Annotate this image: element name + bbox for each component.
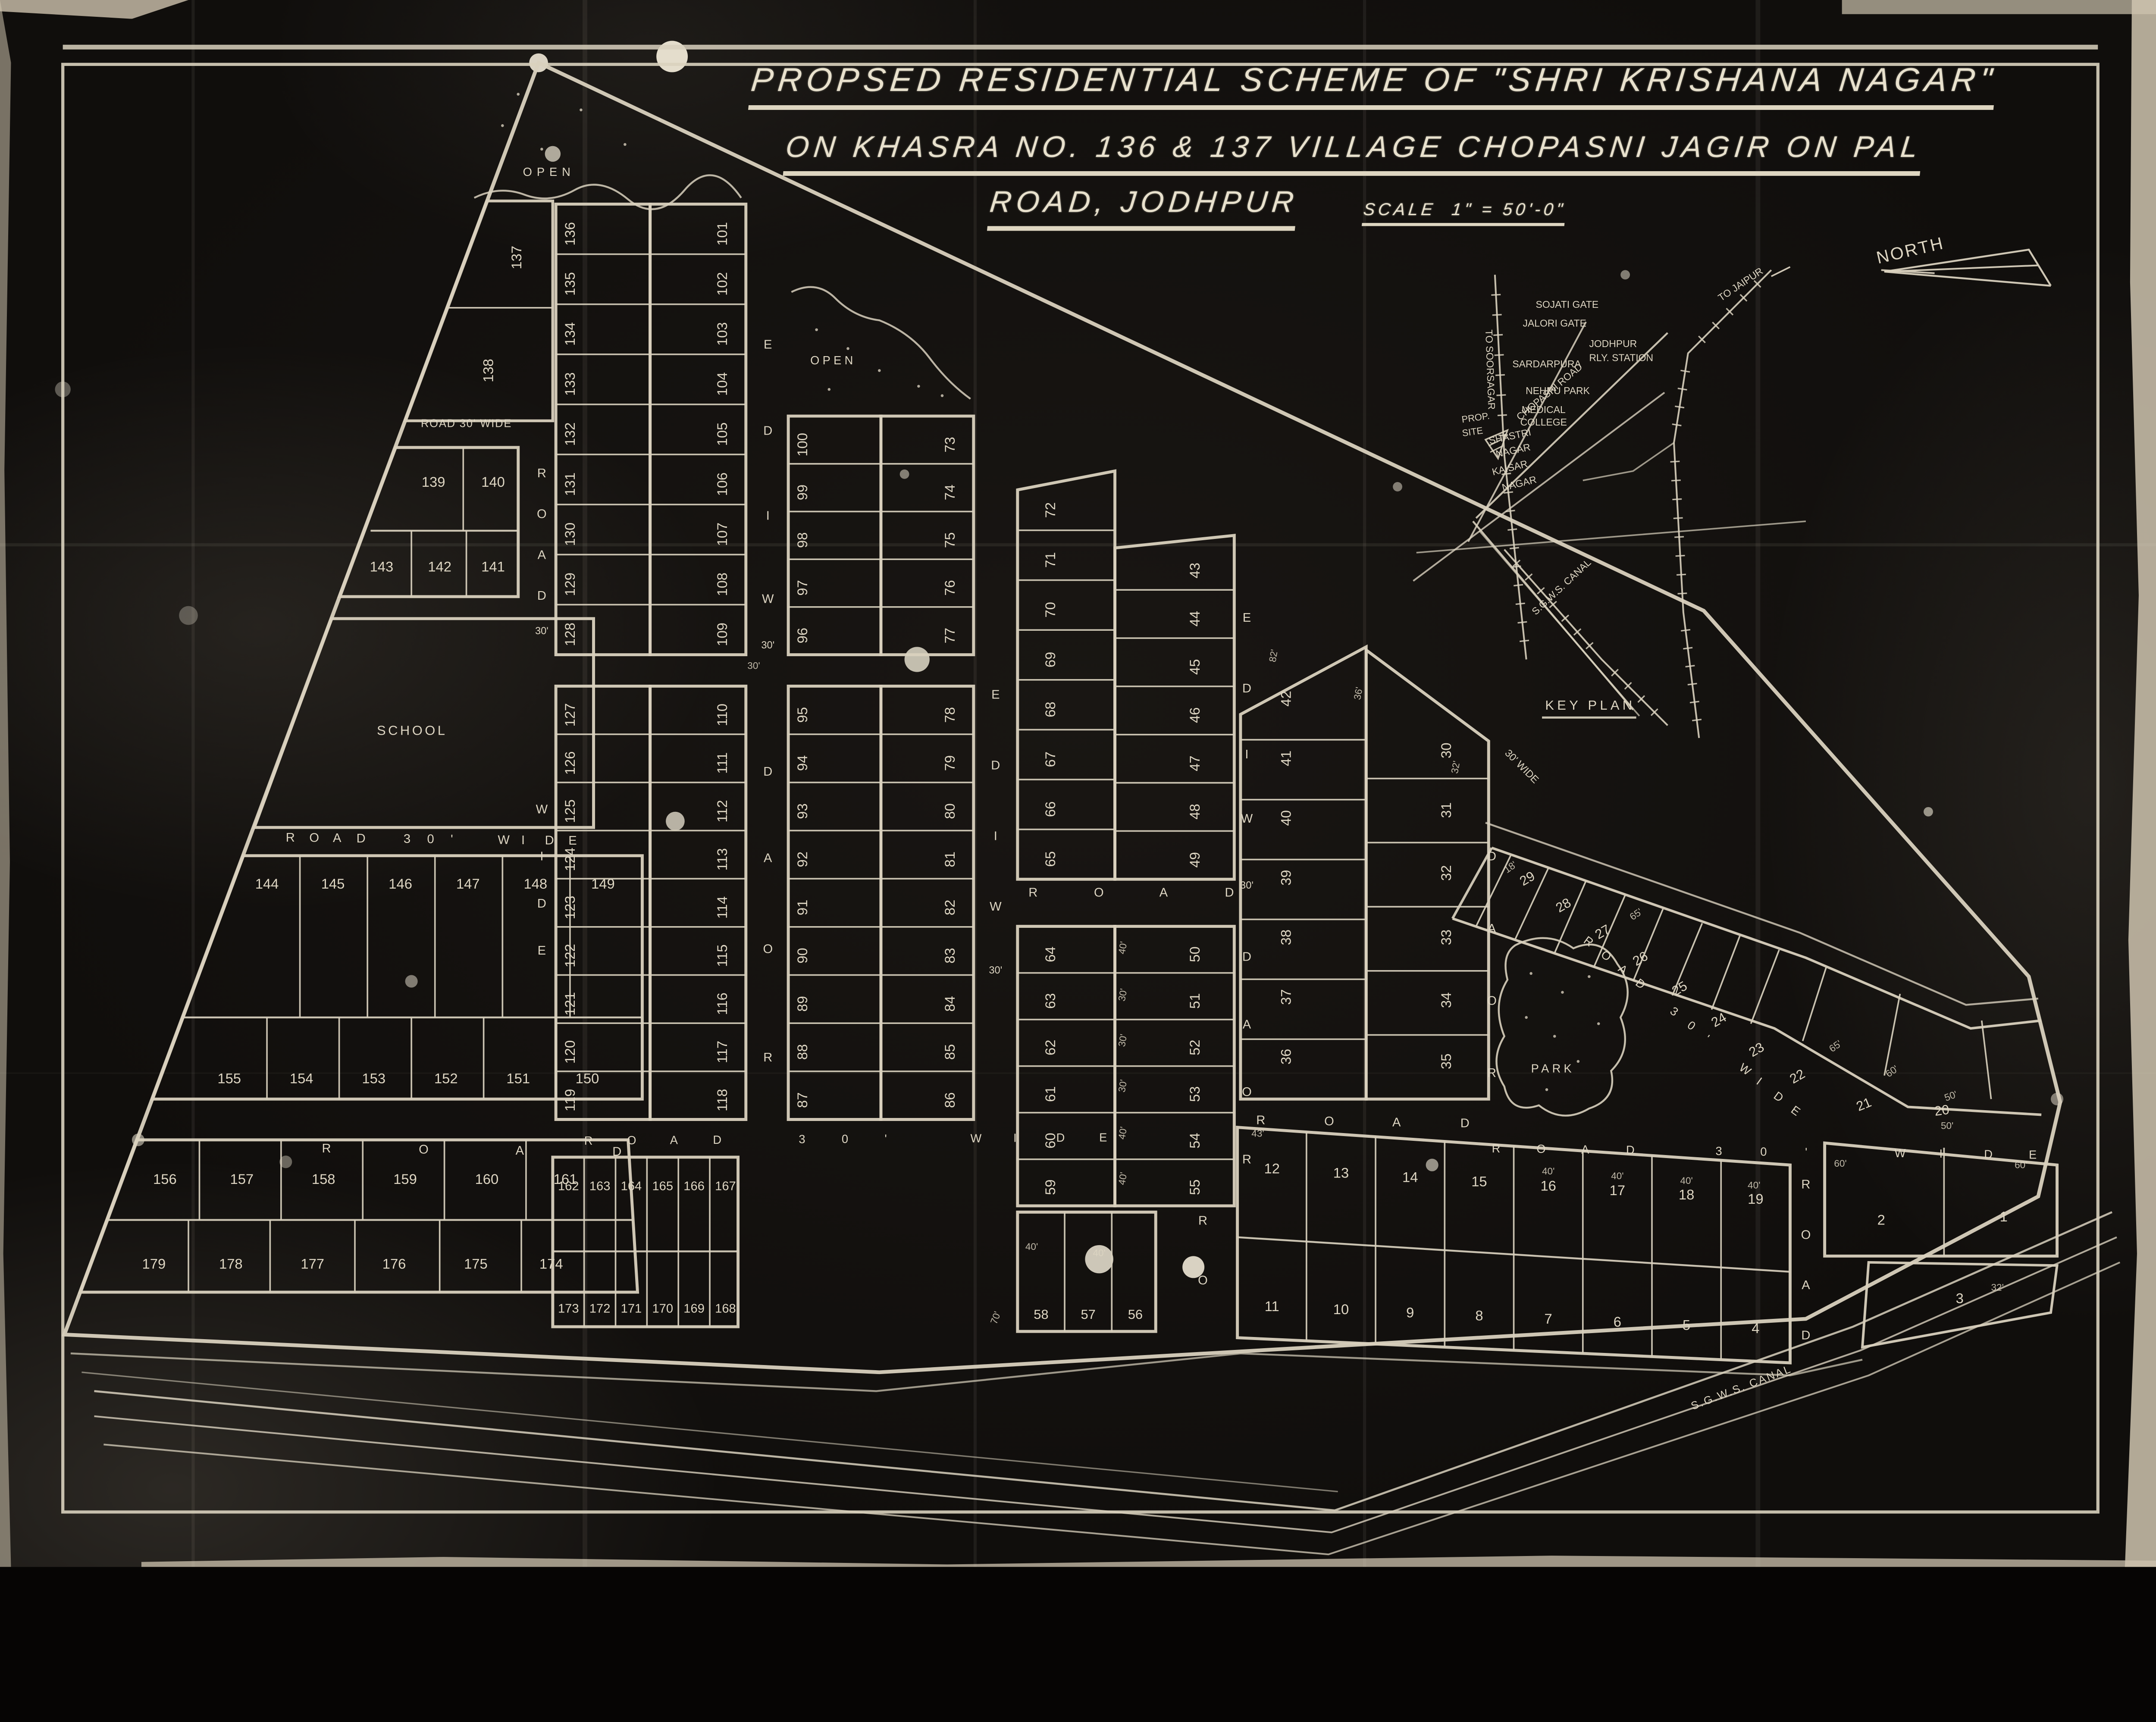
plot-138: 138: [480, 359, 496, 382]
boundary-line: [1018, 471, 1115, 879]
scan-stain: [179, 606, 198, 625]
vroad-label: EDIW: [762, 338, 774, 606]
plot-line: [1982, 1021, 1991, 1099]
road-letter: I: [994, 829, 997, 843]
plot-99: 99: [794, 485, 810, 500]
plot-4: 4: [1752, 1320, 1759, 1336]
plot-168: 168: [715, 1302, 736, 1315]
plot-18: 18: [1679, 1187, 1694, 1202]
plot-line: [1683, 648, 1692, 649]
plot-line: [1681, 630, 1690, 631]
plot-171: 171: [621, 1302, 642, 1315]
road-letter: E: [1099, 1130, 1107, 1144]
plot-line: [1884, 994, 1900, 1075]
plot-53: 53: [1187, 1086, 1203, 1102]
dim-d10: 43': [1251, 1128, 1264, 1139]
road-letter: O: [1487, 994, 1497, 1008]
plot-31: 31: [1438, 802, 1454, 818]
boundary-line: [1416, 521, 1806, 553]
plot-142: 142: [428, 559, 451, 575]
scan-stain: [1620, 270, 1630, 279]
plot-38: 38: [1278, 930, 1294, 945]
road-label-h2: ROAD30'WIDE: [286, 831, 577, 848]
plot-48: 48: [1187, 804, 1203, 819]
keyplan-label-prop1: PROP.: [1461, 410, 1490, 425]
plot-12: 12: [1264, 1161, 1280, 1177]
plot-line: [1751, 950, 1779, 1024]
road-letter: ': [884, 1132, 887, 1146]
plot-line: [1678, 593, 1687, 594]
plot-5: 5: [1683, 1317, 1690, 1333]
plot-14: 14: [1402, 1169, 1418, 1185]
road-letter: D: [1242, 950, 1251, 964]
road-letter: W: [971, 1131, 982, 1145]
plot-10: 10: [1333, 1301, 1349, 1317]
block-A1: 1361351341331321311301291281011021031041…: [556, 204, 746, 654]
block-D: 42414039383736303132333435: [1241, 647, 1489, 1099]
road-letter: I: [1939, 1147, 1943, 1160]
plot-15: 15: [1471, 1174, 1487, 1190]
plot-line: [1520, 640, 1529, 641]
park-label: PARK: [1531, 1061, 1575, 1075]
plot-line: [1673, 518, 1683, 518]
plot-111: 111: [714, 752, 730, 774]
scan-stain: [1393, 482, 1402, 492]
plot-103: 103: [714, 322, 730, 346]
plot-line: [1674, 537, 1684, 537]
boundary-line: [1115, 535, 1235, 880]
plot-155: 155: [217, 1071, 241, 1086]
plot-line: [1518, 622, 1527, 623]
plot-143: 143: [370, 559, 394, 575]
road-letter: A: [764, 851, 772, 865]
plot-131: 131: [562, 473, 578, 496]
plot-37: 37: [1278, 989, 1294, 1005]
plot-29: 29: [1517, 868, 1537, 889]
plot-117: 117: [714, 1041, 730, 1063]
road-letter: E: [568, 834, 577, 848]
plot-145: 145: [321, 876, 345, 892]
plot-line: [1495, 355, 1504, 355]
block-56: 585756: [1018, 1212, 1156, 1331]
plot-116: 116: [714, 992, 730, 1015]
plot-71: 71: [1042, 552, 1058, 567]
plot-21: 21: [1854, 1095, 1874, 1114]
plot-156: 156: [153, 1171, 177, 1187]
plot-line: [1672, 499, 1682, 499]
plot-135: 135: [562, 272, 578, 296]
keyplan-label-soorsagar: TO SOORSAGAR: [1483, 329, 1497, 410]
road-letter: R: [1581, 933, 1596, 949]
road-marker-30: 30': [761, 640, 774, 651]
plot-line: [1516, 603, 1525, 604]
scan-stain: [900, 470, 909, 479]
keyplan-heading: KEY PLAN: [1545, 698, 1635, 713]
open-area-2: OPEN: [791, 287, 970, 399]
road-letter: O: [419, 1143, 429, 1156]
plot-115: 115: [714, 944, 730, 967]
north-arrow: NORTH: [1875, 234, 2051, 286]
plot-173: 173: [558, 1302, 579, 1315]
dim-d16: 60': [2015, 1159, 2027, 1170]
plot-157: 157: [230, 1171, 254, 1187]
school-block: SCHOOL: [254, 619, 594, 827]
dim-d21: 65': [1827, 1038, 1843, 1054]
plot-6: 6: [1614, 1314, 1621, 1330]
plot-147: 147: [456, 876, 480, 892]
road-letter: R: [1242, 1152, 1251, 1166]
plot-73: 73: [942, 437, 958, 452]
road-letter: E: [991, 688, 1000, 702]
plot-30: 30: [1438, 742, 1454, 758]
road-letter: ': [451, 833, 453, 846]
plot-line: [1678, 388, 1687, 390]
plot-140: 140: [481, 474, 505, 490]
road-marker-30: 30': [989, 965, 1002, 976]
plot-153: 153: [362, 1071, 385, 1086]
dim-d27: 30': [747, 660, 760, 671]
plot-150: 150: [576, 1071, 599, 1086]
plot-65: 65: [1042, 851, 1058, 867]
dim-d3: 32': [1449, 760, 1462, 774]
block-A2: 1271261251241231221211201191101111121131…: [556, 686, 746, 1119]
plot-line: [1803, 967, 1827, 1041]
plot-64: 64: [1042, 946, 1058, 962]
dim-d20: 65': [1628, 906, 1644, 922]
plot-62: 62: [1042, 1039, 1058, 1055]
plot-79: 79: [942, 755, 958, 771]
plot-176: 176: [382, 1255, 406, 1271]
plot-95: 95: [794, 707, 810, 723]
plot-129: 129: [562, 573, 578, 596]
road-label-h6: ROAD: [1256, 1113, 1469, 1130]
keyplan-label-kaisar1: KAISAR: [1491, 458, 1529, 478]
road-letter: A: [1159, 886, 1168, 899]
boundary-line: [405, 201, 553, 421]
plot-136: 136: [562, 222, 578, 246]
dim-d5: 30': [1116, 988, 1129, 1002]
dim-d24: 70': [988, 1310, 1003, 1325]
plot-line: [1676, 556, 1685, 556]
plot-151: 151: [506, 1071, 530, 1086]
plot-165: 165: [652, 1179, 673, 1193]
plot-89: 89: [794, 996, 810, 1011]
plot-line: [1686, 666, 1695, 667]
dim-d1: 82': [1267, 648, 1280, 663]
plot-152: 152: [434, 1071, 458, 1086]
plot-45: 45: [1187, 659, 1203, 675]
plot-163: 163: [589, 1179, 611, 1193]
road-letter: E: [538, 944, 546, 958]
plot-96: 96: [794, 628, 810, 643]
plot-22: 22: [1787, 1066, 1807, 1087]
plot-40: 40: [1278, 810, 1294, 826]
keyplan-label-medical1: MEDICAL: [1522, 404, 1566, 415]
plot-line: [1677, 574, 1686, 575]
dim-d13: 40': [1680, 1175, 1692, 1186]
plot-67: 67: [1042, 751, 1058, 767]
plot-line: [1491, 294, 1501, 295]
road-letter: R: [322, 1142, 331, 1155]
plot-122: 122: [562, 944, 578, 967]
plot-line: [1498, 415, 1507, 415]
road-letter: R: [584, 1134, 593, 1147]
road-letter: D: [1460, 1117, 1470, 1130]
park-area: PARK: [1497, 938, 1628, 1116]
plot-70: 70: [1042, 602, 1058, 617]
open-area-1: OPEN: [474, 93, 741, 209]
keyplan-label-canal: S.G.W.S. CANAL: [1529, 557, 1593, 617]
road-letter: W: [1895, 1146, 1906, 1160]
road-letter: D: [1626, 1143, 1635, 1157]
plot-61: 61: [1042, 1086, 1058, 1102]
road-letter: D: [1984, 1147, 1993, 1161]
plot-113: 113: [714, 848, 730, 870]
plot-line: [1492, 315, 1502, 315]
road-label-h4: ROAD30'WIDE: [584, 1130, 1107, 1147]
road-letter: W: [1737, 1061, 1754, 1078]
plot-81: 81: [942, 852, 958, 867]
plot-36: 36: [1278, 1049, 1294, 1065]
plot-86: 86: [942, 1092, 958, 1108]
plot-line: [1672, 424, 1682, 426]
plot-164: 164: [621, 1179, 642, 1193]
road-letter: D: [1633, 976, 1648, 992]
keyplan-label-sardarpura: SARDARPURA: [1512, 358, 1581, 369]
plot-7: 7: [1545, 1311, 1552, 1327]
plot-85: 85: [942, 1044, 958, 1060]
plot-56: 56: [1128, 1307, 1143, 1322]
plot-101: 101: [714, 222, 730, 246]
road-letter: O: [1801, 1228, 1811, 1242]
plot-16: 16: [1540, 1178, 1556, 1194]
boundary-line: [1479, 531, 1639, 716]
keyplan-label-rly2: RLY. STATION: [1589, 352, 1653, 363]
road-letter: W: [498, 833, 510, 847]
road-letter: D: [1225, 886, 1234, 899]
road-letter: 3: [404, 832, 411, 846]
road-letter: I: [1754, 1075, 1764, 1088]
plot-177: 177: [301, 1255, 324, 1271]
road-letter: O: [1198, 1274, 1208, 1287]
road-letter: O: [627, 1133, 636, 1147]
road-letter: A: [516, 1144, 524, 1158]
road-letter: 0: [842, 1132, 848, 1146]
road-letter: A: [1488, 922, 1496, 936]
road-letter: O: [537, 507, 547, 521]
plot-92: 92: [794, 852, 810, 867]
boundary-line: [1583, 443, 1674, 480]
road-letter: 3: [799, 1133, 805, 1146]
plot-25: 25: [1669, 978, 1689, 999]
plot-118: 118: [714, 1089, 730, 1111]
plot-plan-svg: S.G.W.S. CANAL137138139140143142141SCHOO…: [0, 0, 2156, 1567]
plot-170: 170: [652, 1302, 673, 1315]
plot-90: 90: [794, 948, 810, 963]
keyplan-label-medical2: COLLEGE: [1520, 416, 1567, 428]
road-label-h5: ROAD: [1028, 886, 1234, 899]
plot-9: 9: [1406, 1304, 1414, 1320]
plot-146: 146: [389, 876, 412, 892]
plot-91: 91: [794, 900, 810, 915]
plot-66: 66: [1042, 802, 1058, 817]
block-B1: 100999897967374757677: [788, 416, 974, 655]
road-letter: W: [762, 592, 774, 606]
road-marker-30: 30': [535, 626, 548, 637]
road-letter: I: [521, 833, 525, 847]
plot-158: 158: [312, 1171, 335, 1187]
plot-32: 32: [1438, 865, 1454, 881]
plot-141: 141: [481, 559, 505, 575]
boundary-line: [71, 1353, 1862, 1391]
plot-172: 172: [589, 1302, 611, 1315]
vroad-label: DAOR: [763, 765, 773, 1065]
plot-23: 23: [1746, 1039, 1767, 1060]
plot-line: [1495, 375, 1505, 375]
road-letter: W: [990, 900, 1002, 914]
plot-93: 93: [794, 803, 810, 819]
plot-159: 159: [393, 1171, 417, 1187]
dim-d18: 32': [1991, 1282, 2003, 1293]
plot-174: 174: [539, 1255, 563, 1271]
scan-stain: [1426, 1159, 1438, 1171]
plot-120: 120: [562, 1040, 578, 1064]
plot-77: 77: [942, 628, 958, 643]
plot-3: 3: [1956, 1290, 1964, 1306]
plot-11: 11: [1265, 1298, 1279, 1314]
road-letter: D: [763, 424, 772, 438]
boundary-line: [650, 686, 746, 1119]
road-letter: R: [1487, 1066, 1496, 1080]
boundary-line: [1485, 823, 2038, 1005]
plot-76: 76: [942, 580, 958, 595]
plot-26: 26: [1630, 948, 1650, 969]
plot-line: [1497, 395, 1506, 395]
open-wavy-border: [791, 287, 970, 399]
scan-stain: [545, 146, 561, 162]
plot-17: 17: [1610, 1182, 1625, 1198]
border-frame: [63, 64, 2098, 1512]
plot-20: 20: [1934, 1102, 1950, 1118]
plot-51: 51: [1187, 993, 1203, 1008]
road-letter: D: [763, 765, 772, 779]
plot-44: 44: [1187, 611, 1203, 626]
road-letter: I: [1013, 1131, 1017, 1145]
plot-124: 124: [562, 848, 578, 871]
plot-94: 94: [794, 755, 810, 771]
dim-d19: 18': [1502, 859, 1518, 875]
plot-74: 74: [942, 485, 958, 500]
road-letter: 3: [1716, 1144, 1722, 1158]
plot-144: 144: [255, 876, 279, 892]
plot-line: [1554, 881, 1586, 953]
plot-84: 84: [942, 996, 958, 1011]
plot-112: 112: [714, 800, 730, 822]
block-CU: 727170696867666543444546474849: [1018, 471, 1235, 879]
plot-8: 8: [1475, 1308, 1483, 1324]
plot-55: 55: [1187, 1179, 1203, 1195]
road-letter: I: [1245, 748, 1248, 761]
dim-d23: 50': [1943, 1089, 1959, 1103]
plot-114: 114: [714, 896, 730, 919]
dim-d26: 40': [1025, 1241, 1038, 1252]
plot-162: 162: [558, 1179, 579, 1193]
road-marker-30wide: 30' WIDE: [1502, 748, 1541, 786]
road-letter: D: [991, 758, 1000, 772]
road-letter: A: [333, 831, 342, 845]
plot-68: 68: [1042, 701, 1058, 717]
block-CL: 646362616059505152535455: [1018, 927, 1235, 1206]
vroad-label: ROAD: [537, 467, 547, 603]
plot-41: 41: [1278, 751, 1294, 766]
keyplan-label-nehru: NEHRU PARK: [1526, 385, 1590, 396]
road-letter: R: [1256, 1113, 1265, 1127]
road-letter: D: [537, 589, 546, 603]
vroad-label: RO: [1198, 1214, 1208, 1287]
block-139: 139140143142141: [339, 448, 518, 597]
plot-160: 160: [475, 1171, 499, 1187]
road-letter: I: [540, 850, 543, 864]
road-letter: O: [1536, 1142, 1545, 1155]
plot-75: 75: [942, 532, 958, 548]
dim-d6: 30': [1116, 1033, 1129, 1047]
boundary-line: [1453, 918, 2042, 1115]
plot-42: 42: [1278, 691, 1294, 706]
plot-59: 59: [1042, 1179, 1058, 1195]
road-letter: 0: [1685, 1018, 1698, 1033]
plot-98: 98: [794, 532, 810, 548]
plot-83: 83: [942, 948, 958, 963]
road-letter: A: [538, 548, 546, 562]
plot-39: 39: [1278, 870, 1294, 885]
plot-2: 2: [1877, 1212, 1885, 1227]
plot-119: 119: [562, 1089, 578, 1111]
dim-d12: 40': [1611, 1171, 1623, 1181]
plot-110: 110: [714, 704, 730, 726]
road-letter: A: [1392, 1115, 1401, 1129]
plot-132: 132: [562, 423, 578, 446]
road-letter: R: [1028, 886, 1037, 899]
road-letter: I: [766, 509, 770, 523]
boundary-line: [1241, 647, 1366, 1099]
plot-166: 166: [683, 1179, 705, 1193]
plot-137: 137: [508, 246, 524, 269]
road-letter: R: [763, 1051, 772, 1065]
road-letter: D: [357, 832, 366, 845]
road-letter: 0: [1760, 1145, 1767, 1158]
plot-97: 97: [794, 580, 810, 595]
plot-178: 178: [219, 1255, 243, 1271]
plot-88: 88: [794, 1044, 810, 1060]
plot-69: 69: [1042, 652, 1058, 667]
plot-line: [1671, 480, 1681, 481]
block-E: 12131415161718191110987654: [1238, 1127, 1790, 1363]
plot-175: 175: [464, 1255, 488, 1271]
road-letter: E: [1789, 1103, 1803, 1118]
plot-52: 52: [1187, 1039, 1203, 1055]
plot-82: 82: [942, 900, 958, 915]
plot-50: 50: [1187, 946, 1203, 962]
plot-139: 139: [422, 474, 445, 490]
keyplan-label-sojati: SOJATI GATE: [1536, 299, 1599, 310]
plot-126: 126: [562, 751, 578, 775]
road-letter: W: [1241, 812, 1253, 826]
vroad-label: DAOR: [1242, 950, 1252, 1167]
plot-134: 134: [562, 322, 578, 346]
road-letter: O: [1324, 1115, 1334, 1128]
north-label: NORTH: [1875, 234, 1946, 268]
boundary-line: [1366, 650, 1489, 1099]
